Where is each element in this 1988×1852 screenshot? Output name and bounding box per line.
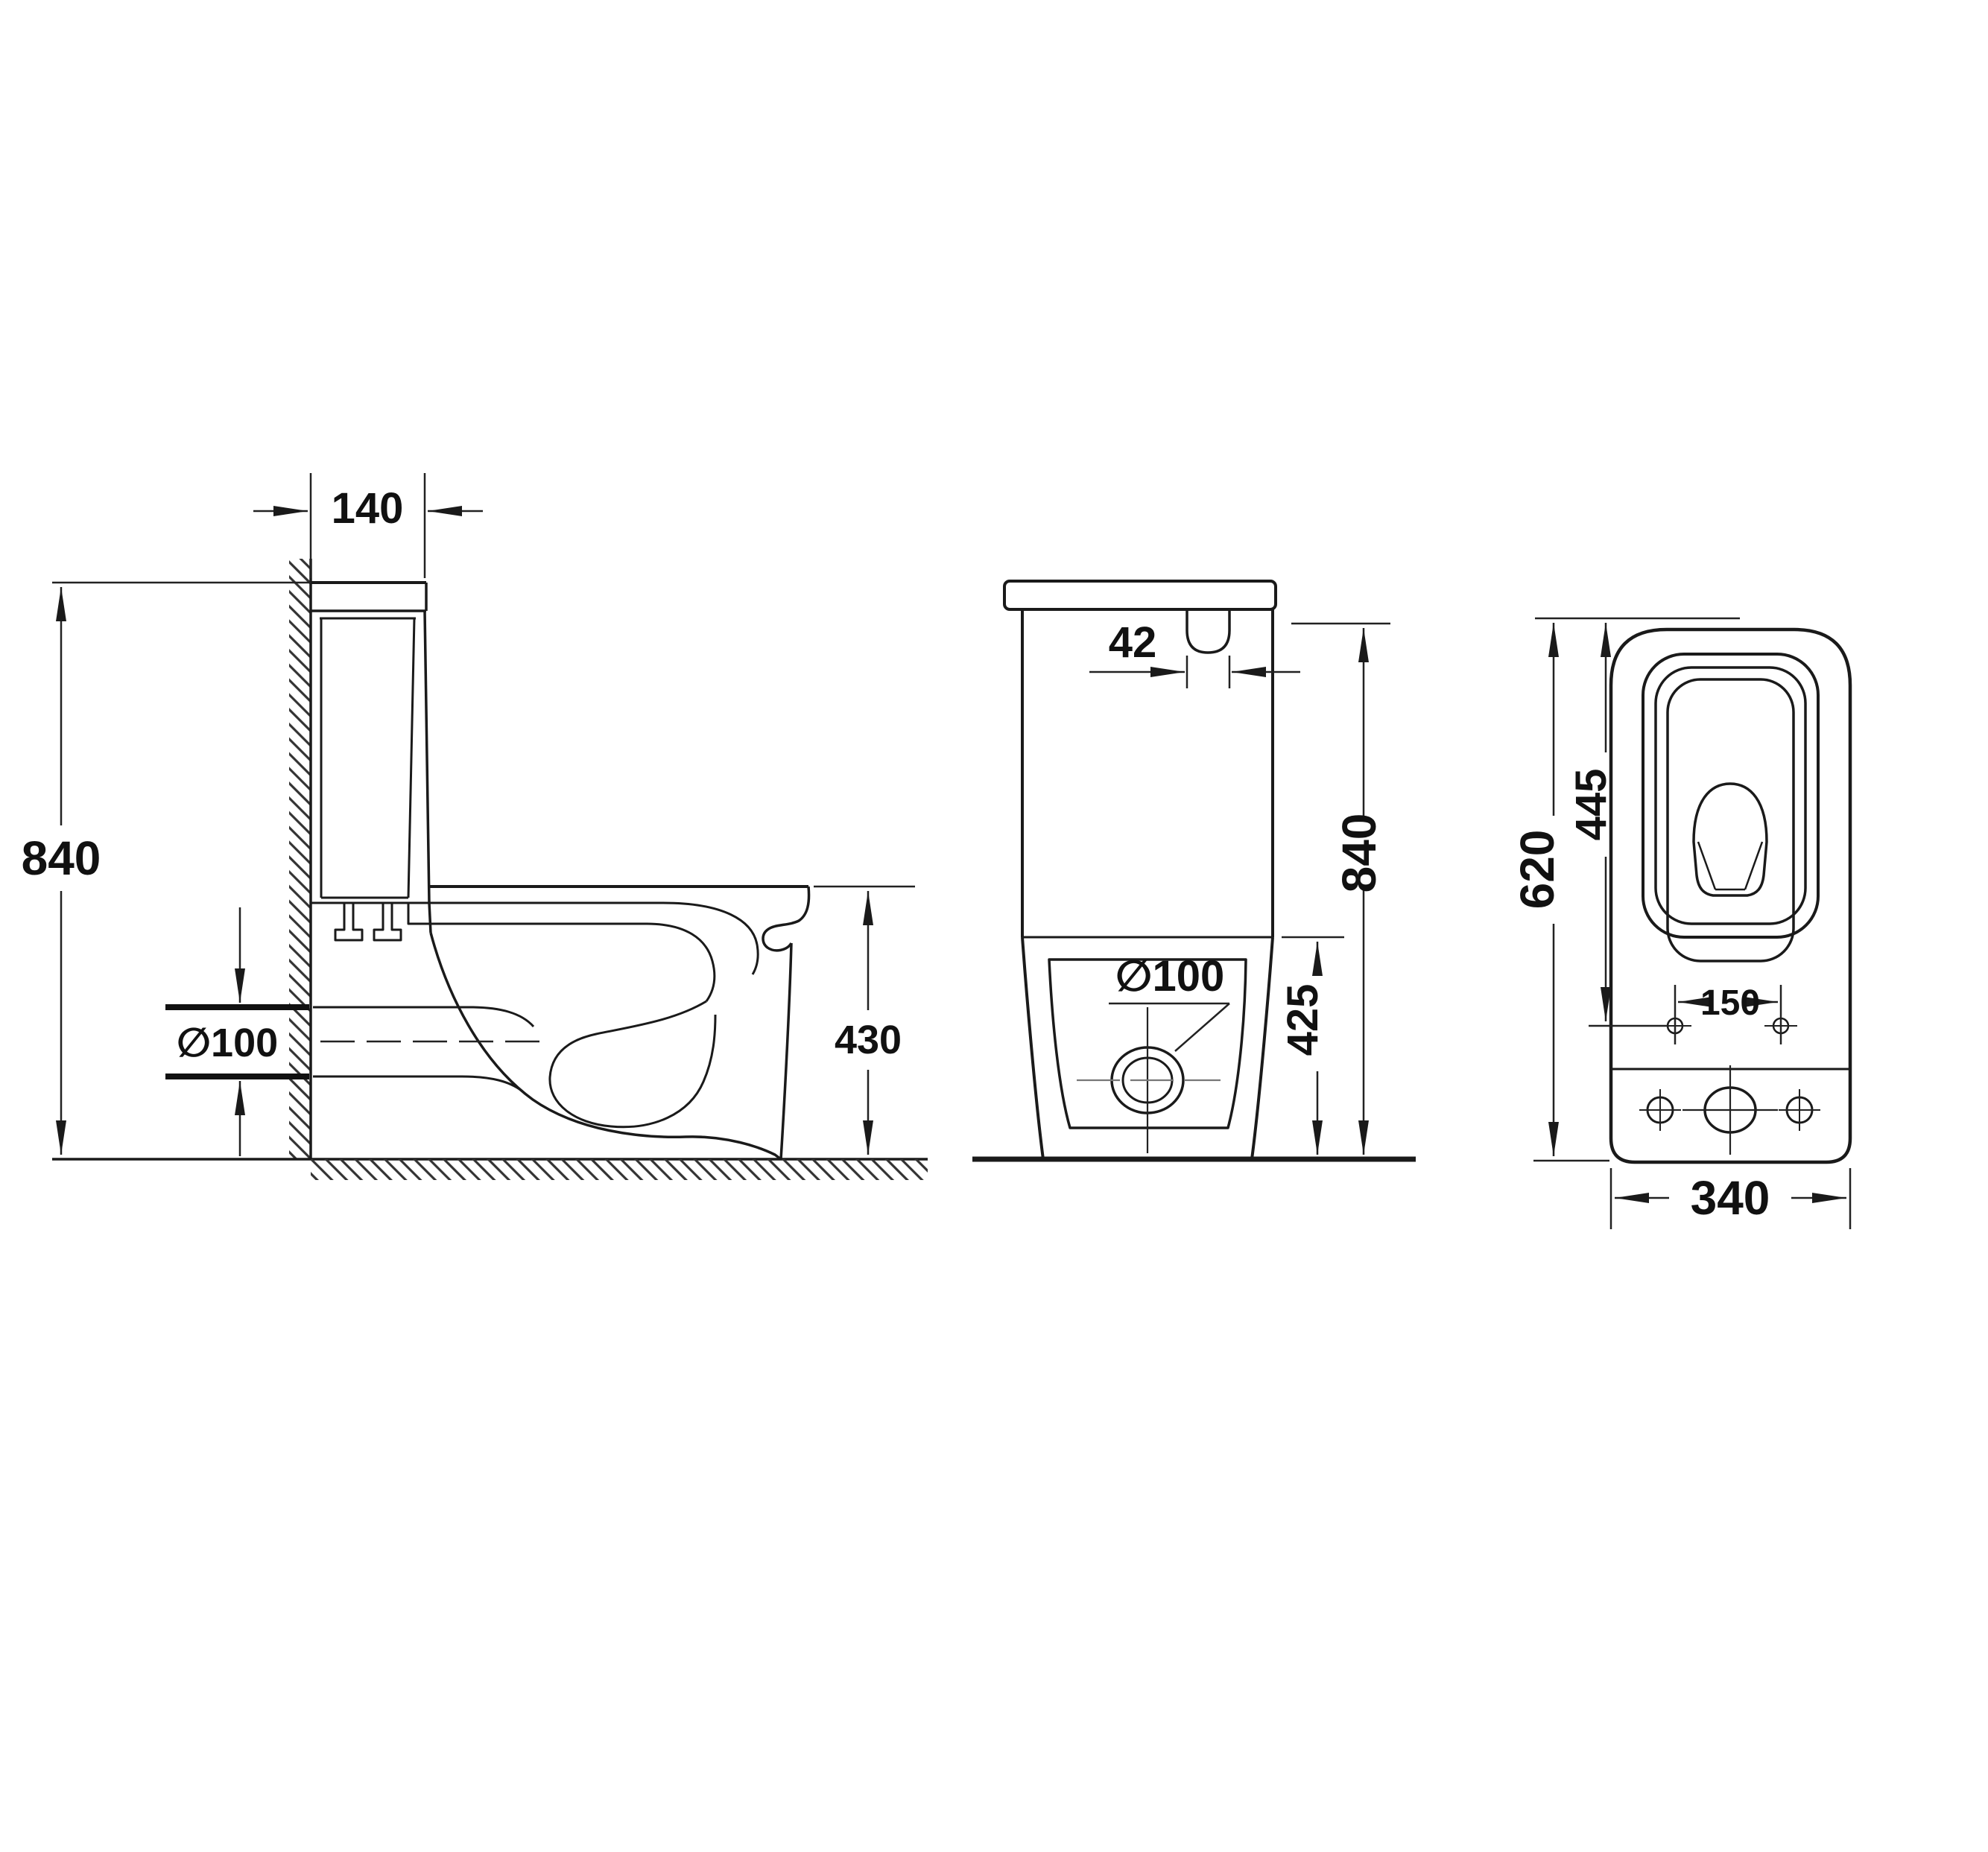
dim-cistern-depth: 140	[253, 473, 483, 578]
dim-label-lower-height: 425	[1279, 984, 1327, 1056]
bowl-left-side	[1022, 937, 1043, 1159]
dim-button-width: 42	[1089, 618, 1300, 688]
dim-label-total-depth: 620	[1510, 830, 1564, 910]
dim-label-front-outlet: ∅100	[1115, 952, 1224, 1000]
dim-label-seat-depth: 445	[1567, 769, 1615, 841]
dim-label-front-height: 840	[1332, 814, 1386, 893]
seat-inner-ring	[1656, 667, 1805, 924]
bowl-front-face	[781, 943, 791, 1159]
cistern-inner-front-wall	[408, 618, 414, 898]
dim-front-total-height: 840	[1291, 624, 1390, 1155]
technical-drawing-page: 840 140 ∅100 430	[0, 0, 1988, 1852]
dim-front-outlet-diameter: ∅100	[1109, 952, 1229, 1051]
bowl-cavity-outline	[1694, 784, 1767, 895]
front-view: 42 ∅100 840 425	[972, 581, 1416, 1159]
cistern-bottom-step	[408, 903, 429, 924]
dim-label-bowl-height: 430	[835, 1018, 902, 1062]
dim-label-side-outlet: ∅100	[177, 1021, 278, 1065]
wall-hatching	[289, 559, 311, 1159]
dim-top-total-depth: 620	[1510, 618, 1740, 1161]
cavity-funnel-left	[1698, 842, 1715, 889]
toilet-technical-drawing: 840 140 ∅100 430	[0, 0, 1988, 1852]
cavity-funnel-right	[1745, 842, 1762, 889]
top-view: 620 445 150 340	[1510, 618, 1850, 1229]
cistern-to-bowl-joint	[429, 903, 431, 933]
dim-bolt-spacing: 150	[1675, 983, 1781, 1044]
outlet-pipe-top	[313, 1007, 534, 1027]
dim-seat-depth: 445	[1567, 623, 1669, 1026]
bowl-interior-and-trap	[550, 1001, 715, 1127]
floor-hatching	[311, 1159, 928, 1180]
bowl-right-side	[1252, 937, 1273, 1159]
outlet-pipe-bottom	[313, 1076, 522, 1091]
outlet-leader-line	[1175, 1003, 1229, 1051]
rear-connection-holes	[1639, 1065, 1820, 1155]
dim-body-width: 340	[1611, 1168, 1850, 1229]
dim-side-total-height: 840	[22, 583, 311, 1155]
bowl-front-rim-hook	[763, 887, 809, 951]
cistern-lid-front	[1004, 581, 1276, 609]
flush-valve-fitting-right	[374, 903, 401, 940]
dim-side-outlet-diameter: ∅100	[165, 907, 309, 1156]
flush-channel-bottom	[429, 924, 715, 1001]
side-section-view: 840 140 ∅100 430	[22, 473, 928, 1180]
dim-bowl-height: 430	[814, 887, 915, 1155]
bowl-rim-outline	[1668, 679, 1794, 961]
flush-channel-top	[429, 903, 758, 974]
dim-label-bolt-spacing: 150	[1700, 983, 1760, 1023]
dim-label-button-width: 42	[1109, 618, 1157, 667]
flush-button-outline	[1187, 609, 1229, 653]
flush-valve-fitting-left	[335, 903, 362, 940]
dim-front-lower-height: 425	[1279, 937, 1344, 1155]
dim-label-body-width: 340	[1691, 1171, 1770, 1225]
dim-label-side-height: 840	[22, 831, 101, 885]
cistern-front-wall	[425, 611, 429, 903]
dim-label-cistern-depth: 140	[332, 484, 404, 533]
